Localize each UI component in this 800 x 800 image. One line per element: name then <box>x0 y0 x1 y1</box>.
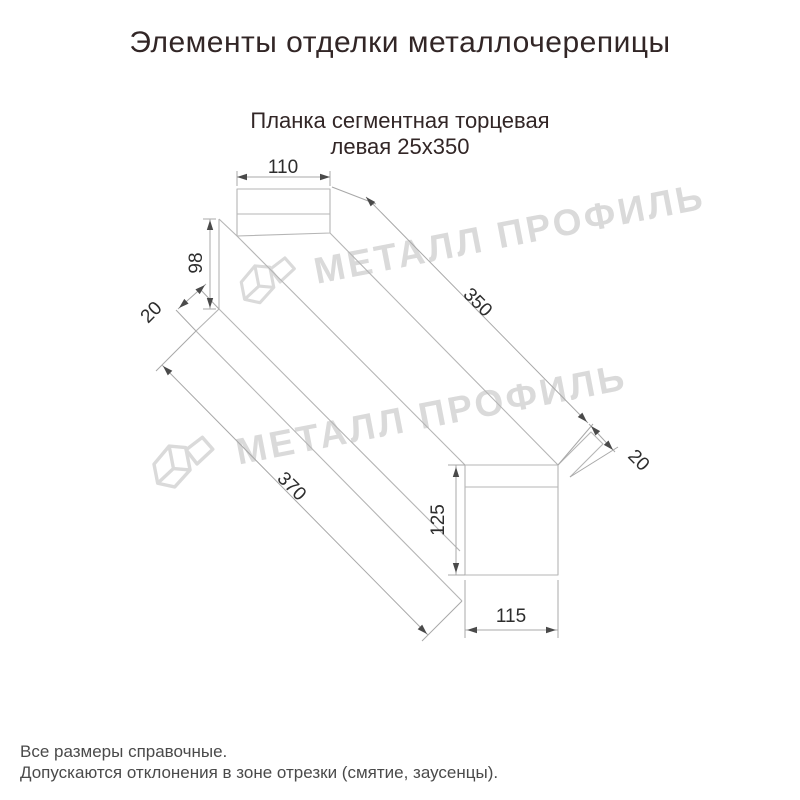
dim-end-width-label: 115 <box>496 606 526 628</box>
dim-end-height-label: 125 <box>428 504 450 536</box>
dimension-lines <box>156 171 618 641</box>
technical-drawing <box>0 0 800 800</box>
dim-left-height-label: 98 <box>186 252 208 273</box>
footnote-sizes-reference: Все размеры справочные. <box>20 742 227 762</box>
part-outline <box>196 189 603 601</box>
dimension-arrows <box>161 174 616 636</box>
footnote-deviations: Допускаются отклонения в зоне отрезки (с… <box>20 763 498 783</box>
dim-top-width-label: 110 <box>268 157 298 179</box>
